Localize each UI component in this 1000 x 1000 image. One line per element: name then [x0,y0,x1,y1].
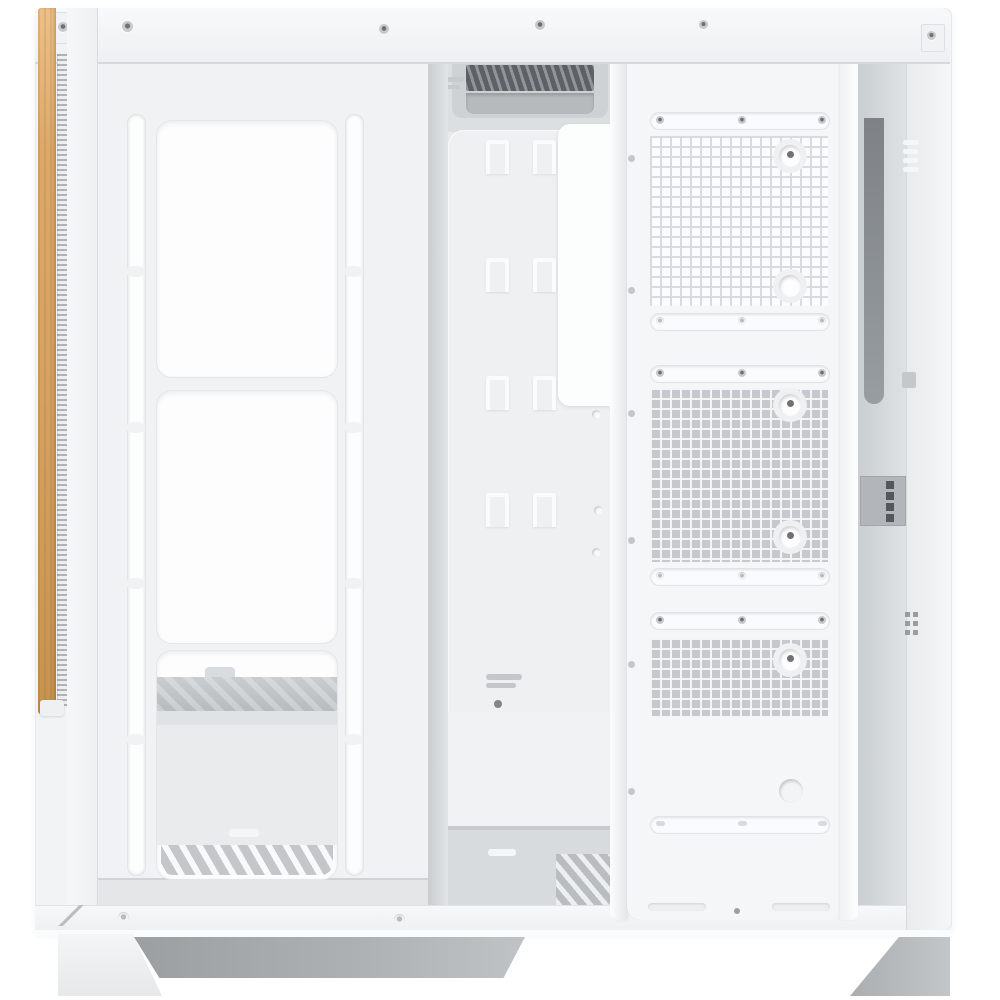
psu-plate-screw [494,700,502,708]
panel-edge-hole [628,788,635,795]
psu-slot [486,683,516,688]
panel-bottom-slot [648,903,706,911]
rail-screw [738,116,746,124]
fan-screw [787,151,794,158]
shroud-floor [157,725,337,845]
rear-foot-shadow [850,937,950,996]
base-front-band [35,930,950,938]
frame-vent-slot [903,140,919,145]
tray-hole [594,506,603,515]
rail-screw [656,317,664,325]
frame-hole [905,621,910,626]
frame-vent-slot [903,158,919,163]
panel-bottom-slot [772,903,830,911]
cable-tie-hook [486,258,509,292]
mesh-section-1 [650,136,828,306]
right-frame [906,8,951,930]
cable-tie-hook [486,493,509,527]
psu-bay-tab [488,849,516,856]
fan-mount-slot-right [345,114,364,876]
bracket-left-pillar [610,30,626,920]
rear-exhaust-slot [864,118,884,404]
rail-screw [738,369,746,377]
frame-hole [913,630,918,635]
base-screw [394,914,405,925]
under-case-shadow [134,937,525,978]
vent-lower-box [466,93,594,114]
bottom-intake-grille [161,845,333,875]
top-screw [699,20,708,29]
slot-notch [126,266,145,277]
fan-screw-hole [779,275,801,297]
rail-screw [738,616,746,624]
rail-screw [738,317,746,325]
rail-screw-slot [738,821,747,826]
fan-cutout-2 [156,390,338,644]
front-mesh-strip [57,54,67,706]
top-screw [122,21,133,32]
rail-screw [738,572,746,580]
mount-hole [779,779,803,803]
frame-hole [913,612,918,617]
tray-hole [592,548,601,557]
slot-notch [344,578,363,589]
rail-screw [656,116,664,124]
psu-bay-grille [556,854,612,905]
rear-connector-block [860,476,906,526]
mesh-section-3 [650,638,828,716]
channel-shadow [428,62,448,905]
top-screw [379,24,389,34]
rail-screw [818,572,826,580]
rail-screw [656,616,664,624]
fan-cutout-3 [156,650,338,880]
rail-screw [818,616,826,624]
cable-tie-hook [486,140,509,174]
frame-vent-slot [903,149,919,154]
cable-tie-hook [533,140,556,174]
top-rail [35,8,950,64]
rail-screw-slot [656,821,665,826]
fan-screw [787,655,794,662]
frame-hole [905,612,910,617]
panel-edge-hole [628,287,635,294]
connector-pin [886,514,894,522]
cable-tie-hook [533,258,556,292]
panel-edge-hole [628,155,635,162]
rail-screw [818,369,826,377]
wood-end-cap [40,700,64,716]
frame-vent-slot [903,167,919,172]
tray-hole [592,410,601,419]
frame-hole [905,630,910,635]
pc-case-photo [0,0,1000,1000]
connector-pin [886,503,894,511]
base-screw [118,912,129,923]
psu-mount-plate [448,712,612,830]
rail-screw [818,317,826,325]
slot-notch [126,734,145,745]
floor-tab [229,829,259,837]
bracket-right-pillar [840,45,858,920]
top-screw [535,20,545,30]
top-screw [927,31,936,40]
rail-screw-slot [818,821,827,826]
front-bracket-flange [97,878,428,907]
slot-notch [344,266,363,277]
fan-cutout-1 [156,120,338,378]
panel-bottom-screw [734,908,740,914]
slot-notch [126,422,145,433]
fan-mount-slot-left [127,114,146,876]
panel-edge-hole [628,410,635,417]
fan-screw [787,400,794,407]
slot-notch [344,734,363,745]
psu-shroud-edge [157,711,337,725]
front-frame-edge [67,8,98,905]
wood-accent-strip [38,8,56,714]
rail-screw [656,369,664,377]
connector-pin [886,481,894,489]
slot-notch [344,422,363,433]
frame-hole [913,621,918,626]
slot-notch [126,578,145,589]
cable-tie-hook [486,376,509,410]
mesh-section-2 [650,388,828,562]
psu-shroud-top [157,677,337,711]
rail-screw [656,572,664,580]
panel-edge-hole [628,537,635,544]
rail-screw [818,116,826,124]
frame-tab [902,372,916,388]
panel-edge-hole [628,661,635,668]
cable-tie-hook [533,376,556,410]
cable-tie-hook [533,493,556,527]
top-vent-grille [466,65,594,91]
fan-screw [787,532,794,539]
psu-slot [486,674,522,680]
connector-pin [886,492,894,500]
